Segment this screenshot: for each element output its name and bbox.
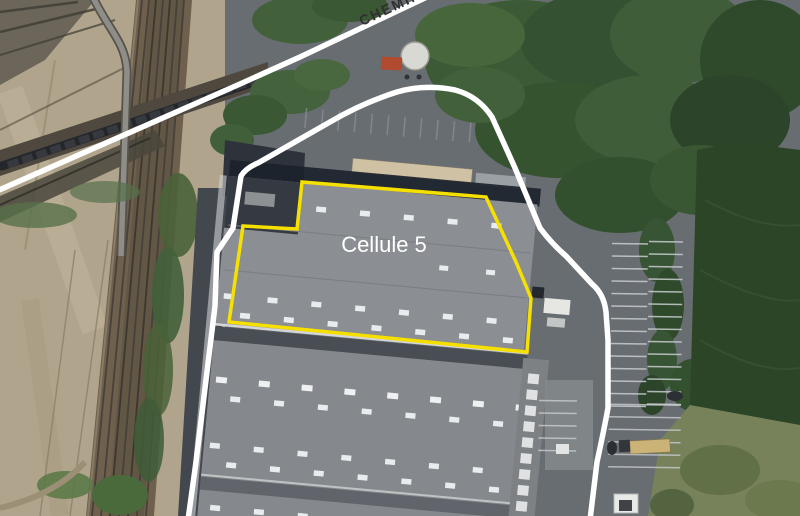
storage-tank bbox=[401, 42, 429, 70]
red-container bbox=[381, 57, 402, 71]
parked-truck bbox=[630, 439, 671, 454]
aerial-map-canvas[interactable]: CHEMIN Cellule 5 bbox=[0, 0, 800, 516]
parked-car bbox=[667, 391, 683, 401]
gatehouse bbox=[543, 298, 570, 315]
zone-label: Cellule 5 bbox=[341, 232, 427, 257]
warehouse-building bbox=[184, 146, 566, 516]
satellite-image: CHEMIN Cellule 5 bbox=[0, 0, 800, 516]
